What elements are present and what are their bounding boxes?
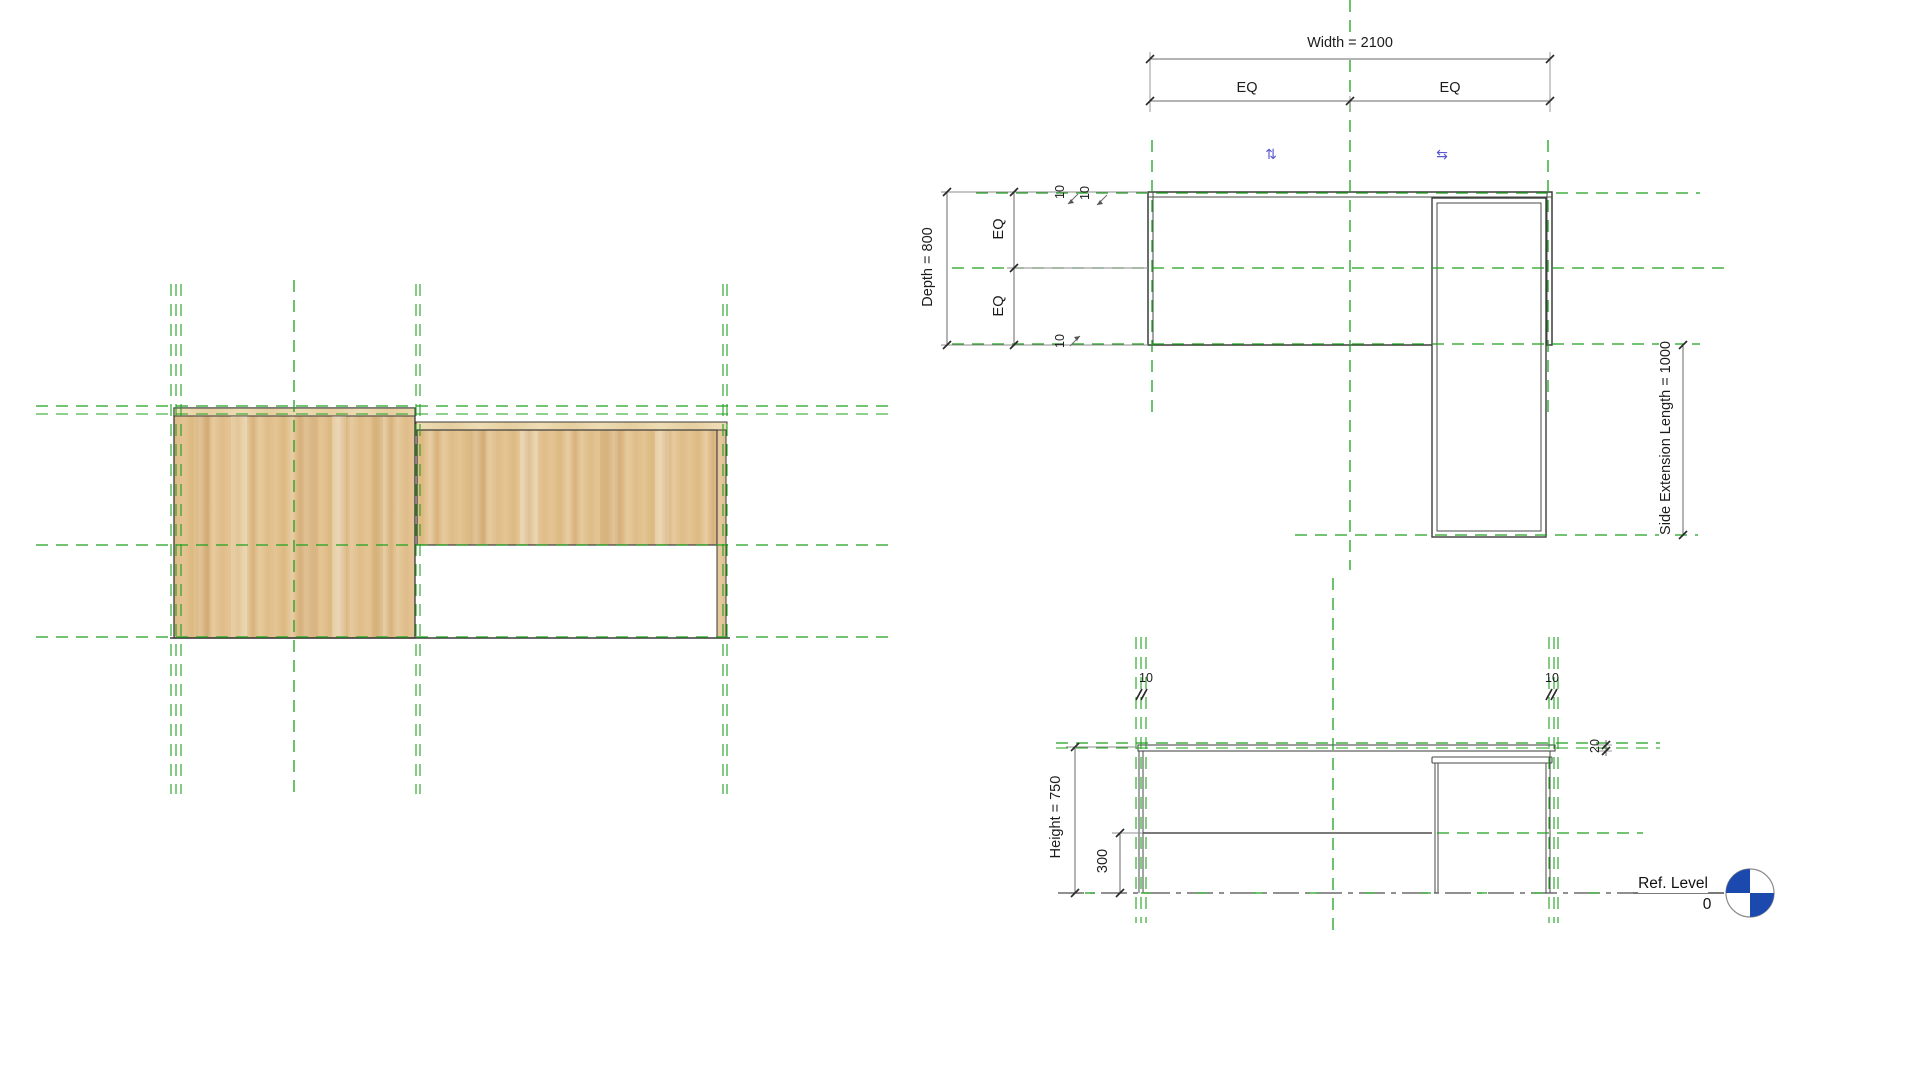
desktop-edge (416, 422, 727, 430)
flip-control-arrow-icon[interactable]: ⇅ (1265, 148, 1277, 162)
ref-level-value[interactable]: 0 (1703, 896, 1712, 914)
depth-dimension-label[interactable]: Depth = 800 (921, 225, 937, 308)
offset-dimension-bottom[interactable]: 10 (1054, 334, 1068, 348)
drawing-linework (0, 0, 1920, 1080)
panel-height-dimension[interactable]: 300 (1096, 847, 1112, 875)
modesty-panel (417, 430, 717, 545)
top-thickness-dimension[interactable]: 20 (1589, 739, 1603, 753)
eq-dimension-label-right[interactable]: EQ (1438, 81, 1463, 97)
leg-offset-dimension-right[interactable]: 10 (1545, 672, 1559, 686)
offset-dimension-top-b[interactable]: 10 (1079, 186, 1093, 200)
drawing-canvas: Width = 2100 EQ EQ Depth = 800 EQ EQ 10 … (0, 0, 1920, 1080)
eq-dimension-label-left[interactable]: EQ (1235, 81, 1260, 97)
height-dimension-label[interactable]: Height = 750 (1049, 774, 1065, 861)
desk-leg (717, 430, 726, 638)
width-dimension-label[interactable]: Width = 2100 (1305, 36, 1395, 52)
front-view-desk-geometry (170, 408, 730, 638)
ref-level-marker-icon[interactable] (1726, 869, 1774, 917)
leg-offset-dimension-left[interactable]: 10 (1139, 672, 1153, 686)
side-extension-dimension-label[interactable]: Side Extension Length = 1000 (1659, 339, 1675, 537)
elevation-view-reference-planes[interactable] (1056, 578, 1660, 935)
eq-dimension-label-lower[interactable]: EQ (992, 294, 1008, 319)
offset-dimension-top-a[interactable]: 10 (1054, 185, 1068, 199)
elevation-side-unit-cap (1432, 757, 1552, 763)
eq-dimension-label-upper[interactable]: EQ (992, 217, 1008, 242)
elevation-view-desk-geometry (1058, 745, 1724, 893)
flip-control-arrow-icon[interactable]: ⇆ (1436, 148, 1448, 162)
plan-side-extension-outline (1432, 198, 1546, 537)
elevation-view-dimension-lines[interactable] (1066, 689, 1612, 897)
ref-level-label[interactable]: Ref. Level (1638, 875, 1708, 893)
